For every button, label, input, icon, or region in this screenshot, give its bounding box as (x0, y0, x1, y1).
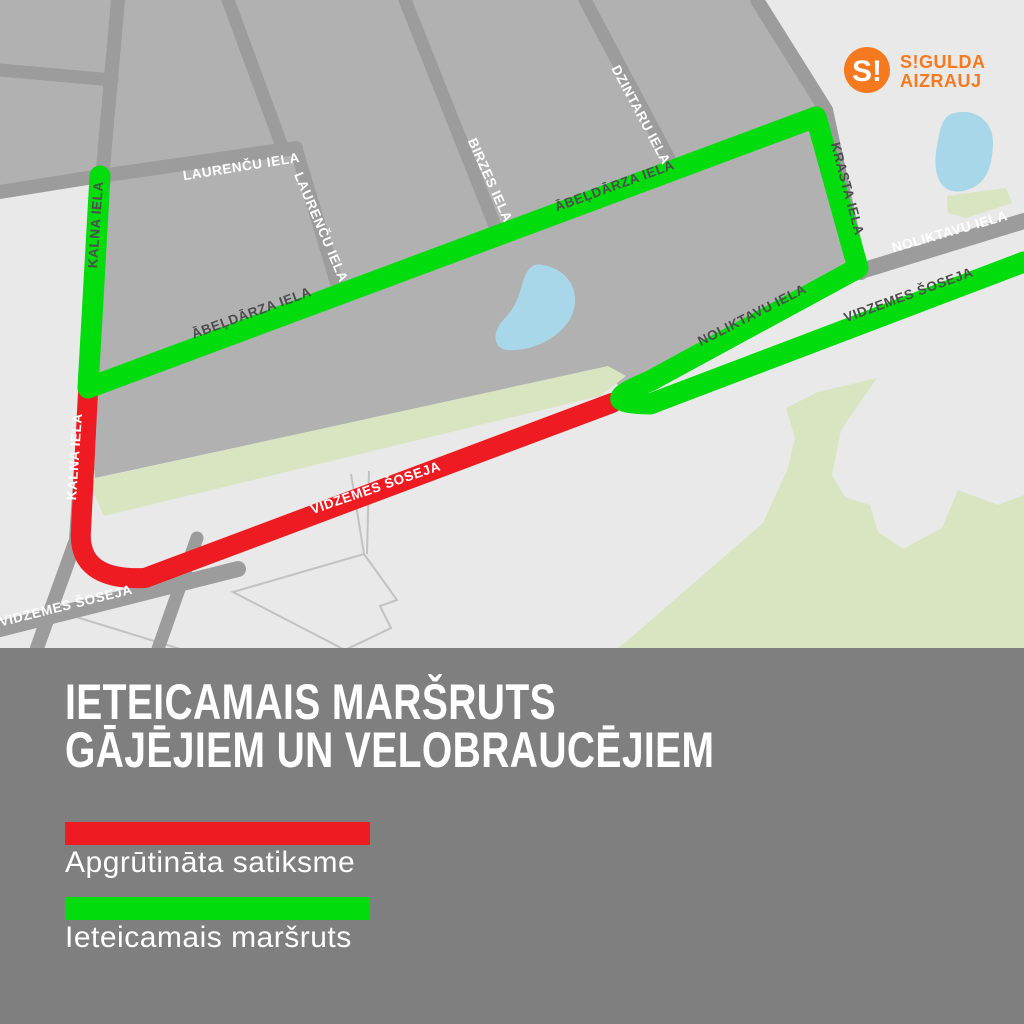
logo-word-line1: S!GULDA (900, 52, 986, 72)
logo-word-line2: AIZRAUJ (900, 71, 982, 91)
logo-mark: S! (852, 55, 882, 88)
legend-label-recommended: Ieteicamais maršruts (65, 921, 352, 955)
page-title: IETEICAMAIS MARŠRUTS GĀJĒJIEM UN VELOBRA… (65, 678, 714, 774)
title-line-2: GĀJĒJIEM UN VELOBRAUCĒJIEM (65, 726, 714, 774)
green-bar-icon (65, 897, 370, 920)
legend-swatch-recommended (65, 897, 370, 920)
sigulda-logo: S! S!GULDA AIZRAUJ (844, 47, 986, 93)
map-canvas: KALNA IELA KALNA IELA LAURENČU IELA LAUR… (0, 0, 1024, 648)
legend-label-restricted: Apgrūtināta satiksme (65, 846, 355, 880)
title-line-1: IETEICAMAIS MARŠRUTS (65, 678, 714, 726)
legend-panel: IETEICAMAIS MARŠRUTS GĀJĒJIEM UN VELOBRA… (0, 648, 1024, 1024)
route-map: KALNA IELA KALNA IELA LAURENČU IELA LAUR… (0, 0, 1024, 648)
legend-swatch-restricted (65, 822, 370, 845)
red-bar-icon (65, 822, 370, 845)
